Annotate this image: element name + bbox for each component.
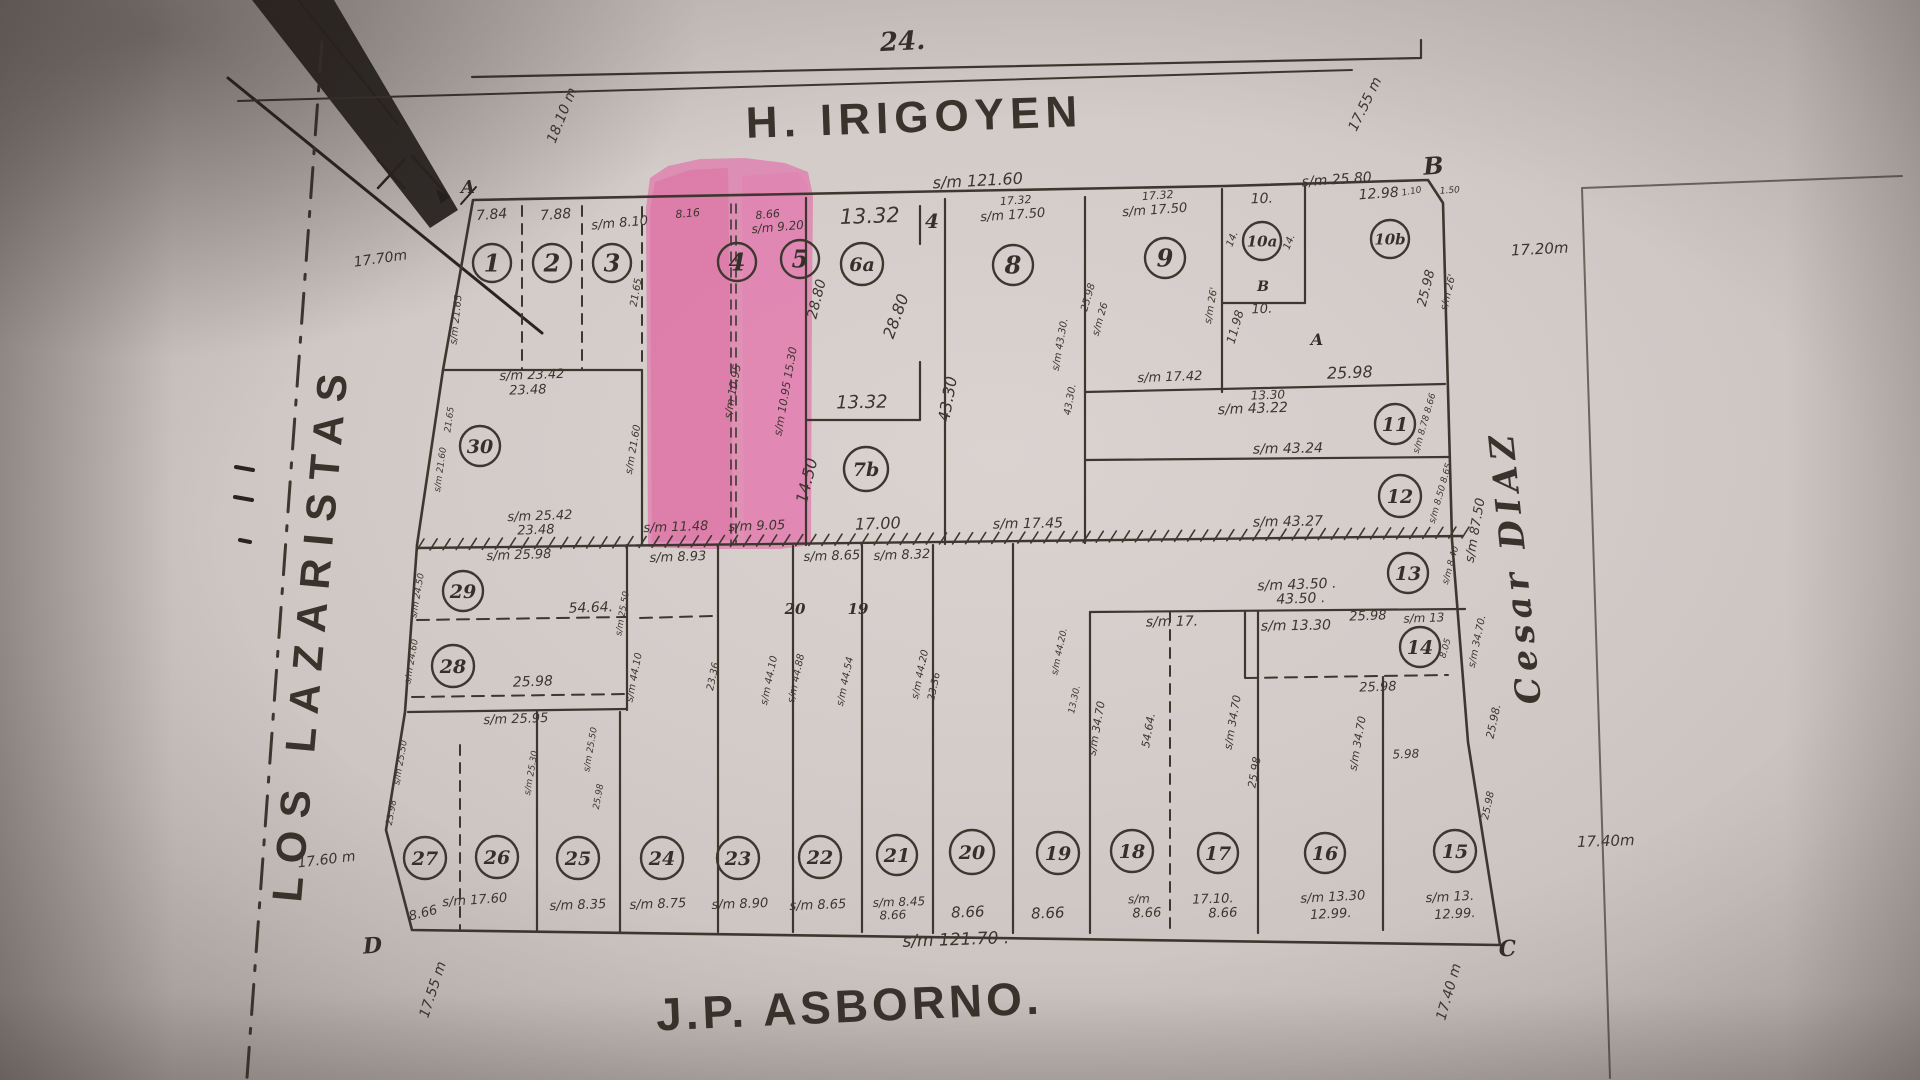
measurement-label: s/m 43.27 <box>1253 513 1324 530</box>
measurement-label: 17.55 m <box>1345 75 1385 134</box>
lot-18: 18 <box>1111 830 1153 872</box>
corner-letter-a: A <box>459 177 475 198</box>
measurement-label: s/m 17.60 <box>442 891 508 911</box>
measurement-label: s/m 43.22 <box>1218 400 1289 418</box>
measurement-label: s/m 34.70 <box>1221 694 1243 751</box>
measurement-label: s/m 8.10 <box>591 214 649 234</box>
lot-number: 2 <box>543 249 561 278</box>
measurement-label: 25.98 <box>1327 362 1373 383</box>
measurement-label: 12.98 <box>1358 185 1399 204</box>
measurement-label: s/m 44.10 <box>759 655 780 706</box>
measurement-label: s/m 26' <box>1203 286 1220 324</box>
measurement-label: s/m 26' <box>1439 273 1459 312</box>
measurement-label: s/m 13.30 <box>1261 617 1332 634</box>
measurement-label: 25.98 <box>1349 608 1387 624</box>
lot-number: 1 <box>484 249 501 278</box>
lot-number: 16 <box>1312 843 1338 865</box>
lot-number-circles: 123456a8910a10b7b11121314302928272625242… <box>404 220 1476 879</box>
measurement-label: 17.70m <box>353 247 408 270</box>
street-name-jp-asborno: J.P. ASBORNO. <box>655 972 1044 1041</box>
lot-number: 3 <box>604 249 621 278</box>
lot-number: 14 <box>1407 637 1433 659</box>
lot-19: 19 <box>1037 832 1079 874</box>
measurement-labels: 7.847.88s/m 8.108.168.66s/m 9.2013.3217.… <box>297 75 1635 1022</box>
measurement-label: s/m 13. <box>1425 889 1474 907</box>
measurement-label: 43.30. <box>1062 383 1078 416</box>
block-linework <box>386 180 1500 945</box>
measurement-label: s/m 24.50 <box>409 572 427 618</box>
across-block-number: 24. <box>878 26 926 58</box>
lot-number: 17 <box>1205 843 1231 865</box>
block-outline <box>386 180 1500 945</box>
street-name-h-irigoyen: H. IRIGOYEN <box>745 87 1084 148</box>
measurement-label: 12.99. <box>1310 906 1352 923</box>
measurement-label: s/m 34.70 <box>1085 700 1107 757</box>
measurement-label: 7.84 <box>476 206 508 224</box>
lot-number: 6a <box>849 254 875 276</box>
measurement-label: s/m 43.30. <box>1050 317 1070 371</box>
measurement-label: s/m 44.88 <box>786 653 807 704</box>
lot-29: 29 <box>443 571 483 611</box>
sublot-letter-a: A <box>1309 330 1323 349</box>
lot-number: 8 <box>1004 251 1022 280</box>
corner-letter-d: D <box>361 932 383 959</box>
lot-number: 5 <box>792 245 809 274</box>
measurement-label: 12.99. <box>1434 906 1476 923</box>
measurement-label: 1.10 <box>1401 185 1423 198</box>
measurement-label: s/m 8.32 <box>873 547 930 564</box>
medianera-hatched-line-base <box>417 536 1462 548</box>
measurement-label: 25.98 <box>1359 679 1397 695</box>
measurement-label: s/m 8.90 <box>711 896 768 913</box>
measurement-label: s/m 25.50 <box>614 590 632 636</box>
measurement-label: s/m 11.48 <box>643 519 709 536</box>
cadastral-plan: H. IRIGOYEN J.P. ASBORNO. LOS LAZARISTAS… <box>0 0 1920 1080</box>
measurement-label: 25.98 <box>592 783 606 810</box>
measurement-label: s/m 13 <box>1403 610 1445 625</box>
measurement-label: 14. <box>1225 230 1241 249</box>
lot-number-plain: 20 <box>784 600 806 618</box>
lot-30: 30 <box>460 426 500 466</box>
measurement-label: 8.66 <box>951 902 985 921</box>
lot-number: 10b <box>1374 230 1405 248</box>
measurement-label: 17.40m <box>1577 831 1635 851</box>
measurement-label: 17.00 <box>855 513 901 534</box>
measurement-label: 54.64. <box>568 599 613 617</box>
corner-letter-c: C <box>1498 935 1518 962</box>
lot-9: 9 <box>1145 238 1185 278</box>
lot-number: 18 <box>1119 841 1145 863</box>
measurement-label: s/m 17.50 <box>1122 201 1188 221</box>
lot-6a: 6a <box>841 243 883 285</box>
lot-23: 23 <box>717 837 759 879</box>
measurement-label: 11.98 <box>1224 308 1247 345</box>
measurement-label: s/m 34.70 <box>1346 715 1368 772</box>
measurement-label: s/m 21.65 <box>448 294 464 345</box>
measurement-label: s/m 17. <box>1146 614 1199 631</box>
measurement-label: 8.66 <box>1132 906 1161 922</box>
lot-number: 12 <box>1387 486 1413 508</box>
lot-number: 28 <box>439 656 466 678</box>
lot-number: 25 <box>564 848 591 870</box>
measurement-label: s/m 17.42 <box>1137 369 1203 386</box>
lot-number: 26 <box>483 847 510 869</box>
lot-7b: 7b <box>844 447 888 491</box>
measurement-label: 10. <box>1251 302 1272 318</box>
measurement-label: s/m 17.50 <box>980 206 1046 226</box>
measurement-label: 10. <box>1250 191 1273 208</box>
lot-14: 14 <box>1400 627 1440 667</box>
measurement-label: 14. <box>1282 233 1298 252</box>
measurement-label: 17.32 <box>1142 188 1174 203</box>
lot-8: 8 <box>993 245 1033 285</box>
lot-25: 25 <box>557 837 599 879</box>
measurement-label: 25.98 <box>1415 268 1439 308</box>
measurement-label: s/m 8.40 <box>1441 545 1462 586</box>
measurement-label: 54.64. <box>1139 712 1158 749</box>
street-name-los-lazaristas: LOS LAZARISTAS <box>263 359 357 904</box>
lot-number: 19 <box>1045 843 1071 865</box>
lot-21: 21 <box>877 835 917 875</box>
measurement-label: s/m 25.50 <box>392 739 410 785</box>
measurement-label: s/m 26 <box>1091 301 1111 337</box>
lot-number: 30 <box>467 436 493 458</box>
lot-12: 12 <box>1379 475 1421 517</box>
measurement-label: 28.80 <box>879 291 913 341</box>
measurement-label: 25.98 <box>1480 790 1497 820</box>
measurement-label: 17.40 m <box>1433 962 1464 1022</box>
lot-number: 20 <box>958 842 985 864</box>
lot-17: 17 <box>1198 833 1238 873</box>
measurement-label: 13.32 <box>836 392 888 414</box>
measurement-label: 23.36 <box>705 661 722 691</box>
cesar-diaz-east-block-lines <box>1582 176 1902 1078</box>
sublot-letter-b: B <box>1256 279 1269 295</box>
lot-11: 11 <box>1375 404 1415 444</box>
measurement-label: s/m 25.98 <box>486 547 552 564</box>
measurement-label: 23.36 <box>926 671 943 701</box>
lot-26: 26 <box>476 836 518 878</box>
lot-number-plain: 4 <box>925 209 939 233</box>
lot-number-plain: 19 <box>848 600 869 618</box>
lot-number: 9 <box>1157 244 1174 273</box>
measurement-label: s/m 9.05 <box>728 518 785 535</box>
measurement-label: 1.50 <box>1440 185 1461 196</box>
measurement-label: 8.66 <box>1208 906 1237 922</box>
lot-13: 13 <box>1388 553 1428 593</box>
measurement-label: 21.65 <box>443 406 457 433</box>
measurement-label: s/m <box>1128 892 1150 907</box>
measurement-label: 23.48 <box>517 522 555 538</box>
lot-number: 23 <box>724 848 751 870</box>
corner-letter-b: B <box>1421 150 1444 180</box>
street-name-cesar-diaz: Cesar DIAZ <box>1481 427 1550 706</box>
measurement-label: s/m 44.54 <box>835 656 856 707</box>
measurement-label: s/m 25.30. <box>523 747 541 796</box>
measurement-label: s/m 34.70. <box>1467 614 1489 668</box>
lot-10a: 10a <box>1243 222 1281 260</box>
measurement-label: 7.88 <box>540 206 572 224</box>
lot-1: 1 <box>473 244 511 282</box>
measurement-label: s/m 8.75 <box>629 896 686 913</box>
measurement-label: 8.66 <box>1031 903 1065 922</box>
measurement-label: s/m 21.60 <box>433 446 449 492</box>
lot-number: 13 <box>1395 563 1421 585</box>
lot-28: 28 <box>432 645 474 687</box>
measurement-label: s/m 8.65 <box>803 548 860 565</box>
lot-24: 24 <box>641 837 683 879</box>
measurement-label: 17.32 <box>1000 193 1032 208</box>
measurement-label: 23.98 <box>385 799 399 826</box>
lot-number: 15 <box>1442 841 1468 863</box>
measurement-label: 8.66 <box>879 908 907 923</box>
measurement-label: 18.10 m <box>544 86 581 146</box>
measurement-label: s/m 8.35 <box>549 897 606 914</box>
measurement-label: 8.66 <box>407 903 439 925</box>
frontage-bottom-measure: s/m 121.70 . <box>902 928 1009 952</box>
lot-10b: 10b <box>1371 220 1409 258</box>
lot-number: 11 <box>1382 414 1408 436</box>
lot-number: 7b <box>853 459 880 481</box>
measurement-label: 25.98. <box>1484 703 1504 740</box>
lot-20: 20 <box>950 830 994 874</box>
measurement-label: 23.48 <box>509 382 547 398</box>
lot-number: 21 <box>883 845 910 867</box>
measurement-label: 13.32 <box>839 203 900 229</box>
measurement-label: 25.98 <box>1245 756 1263 789</box>
lot-number: 22 <box>806 847 833 869</box>
measurement-label: s/m 44.20. <box>1050 627 1070 676</box>
measurement-label: s/m 25.95 <box>483 711 549 728</box>
measurement-label: s/m 8.65 <box>789 897 846 914</box>
lot-number: 27 <box>411 848 438 870</box>
measurement-label: 5.98 <box>1392 747 1420 762</box>
lot-number: 10a <box>1247 232 1278 250</box>
lot-27: 27 <box>404 837 446 879</box>
measurement-label: 25.98 <box>1079 282 1097 313</box>
lot-number: 29 <box>449 581 476 603</box>
lot-22: 22 <box>799 836 841 878</box>
measurement-label: 13.30. <box>1067 685 1083 715</box>
measurement-label: s/m 8.93 <box>649 549 706 566</box>
measurement-label: s/m 24.60 <box>403 638 421 684</box>
lot-2: 2 <box>533 244 571 282</box>
measurement-label: s/m 17.45 <box>993 515 1064 532</box>
measurement-label: 17.20m <box>1511 239 1569 260</box>
lot-15: 15 <box>1434 830 1476 872</box>
measurement-label: 43.30 <box>934 375 961 423</box>
measurement-label: s/m 21.60 <box>624 424 644 475</box>
measurement-label: 17.55 m <box>417 960 450 1020</box>
measurement-label: 8.16 <box>675 206 701 221</box>
survey-plan-photo: H. IRIGOYEN J.P. ASBORNO. LOS LAZARISTAS… <box>0 0 1920 1080</box>
measurement-label: s/m 23.42 <box>499 367 565 384</box>
measurement-label: s/m 43.24 <box>1253 440 1323 457</box>
measurement-label: s/m 13.30 <box>1300 888 1366 906</box>
lot-3: 3 <box>593 244 631 282</box>
measurement-label: s/m 25.50 <box>582 726 600 772</box>
lot-number: 4 <box>729 248 746 277</box>
lot-number: 24 <box>648 848 675 870</box>
measurement-label: 25.98 <box>513 673 554 690</box>
lot-16: 16 <box>1305 833 1345 873</box>
measurement-label: 43.50 . <box>1276 590 1326 608</box>
